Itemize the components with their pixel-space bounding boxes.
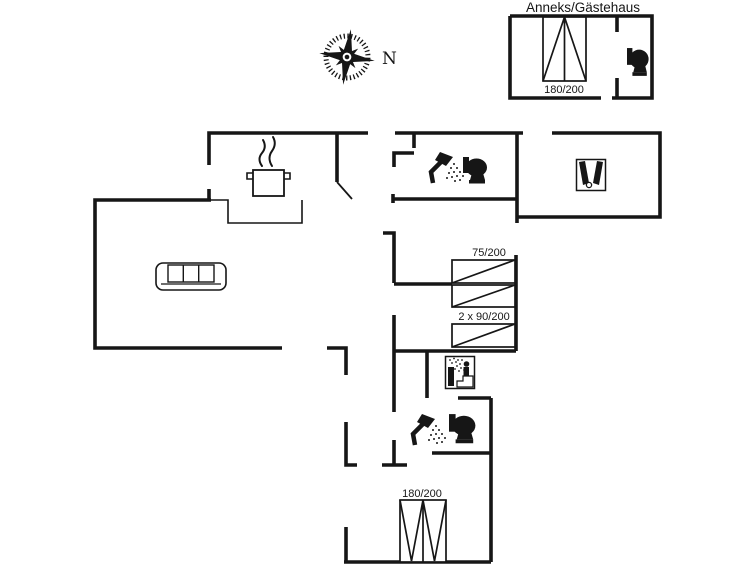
bed-90x200-a xyxy=(452,285,515,307)
paper-background xyxy=(0,0,755,566)
bed-90x200-b xyxy=(452,324,515,347)
bottles-icon xyxy=(577,160,606,191)
bed-annex-180x200 xyxy=(543,17,586,81)
sauna-icon xyxy=(446,357,475,389)
bed-label-annex: 180/200 xyxy=(544,84,584,96)
bed-label-75x200: 75/200 xyxy=(472,247,506,259)
bed-south-180x200 xyxy=(400,500,446,562)
annex-title: Anneks/Gästehaus xyxy=(526,0,640,15)
sofa-icon xyxy=(156,263,226,290)
floorplan-svg: 180/200 75/200 2 x 90/200 180/200 xyxy=(0,0,755,566)
bed-label-2x90x200: 2 x 90/200 xyxy=(458,311,509,323)
floorplan-page: 180/200 75/200 2 x 90/200 180/200 xyxy=(0,0,755,566)
bed-label-south: 180/200 xyxy=(402,488,442,500)
bed-75x200 xyxy=(452,260,515,283)
north-label: N xyxy=(382,49,397,69)
